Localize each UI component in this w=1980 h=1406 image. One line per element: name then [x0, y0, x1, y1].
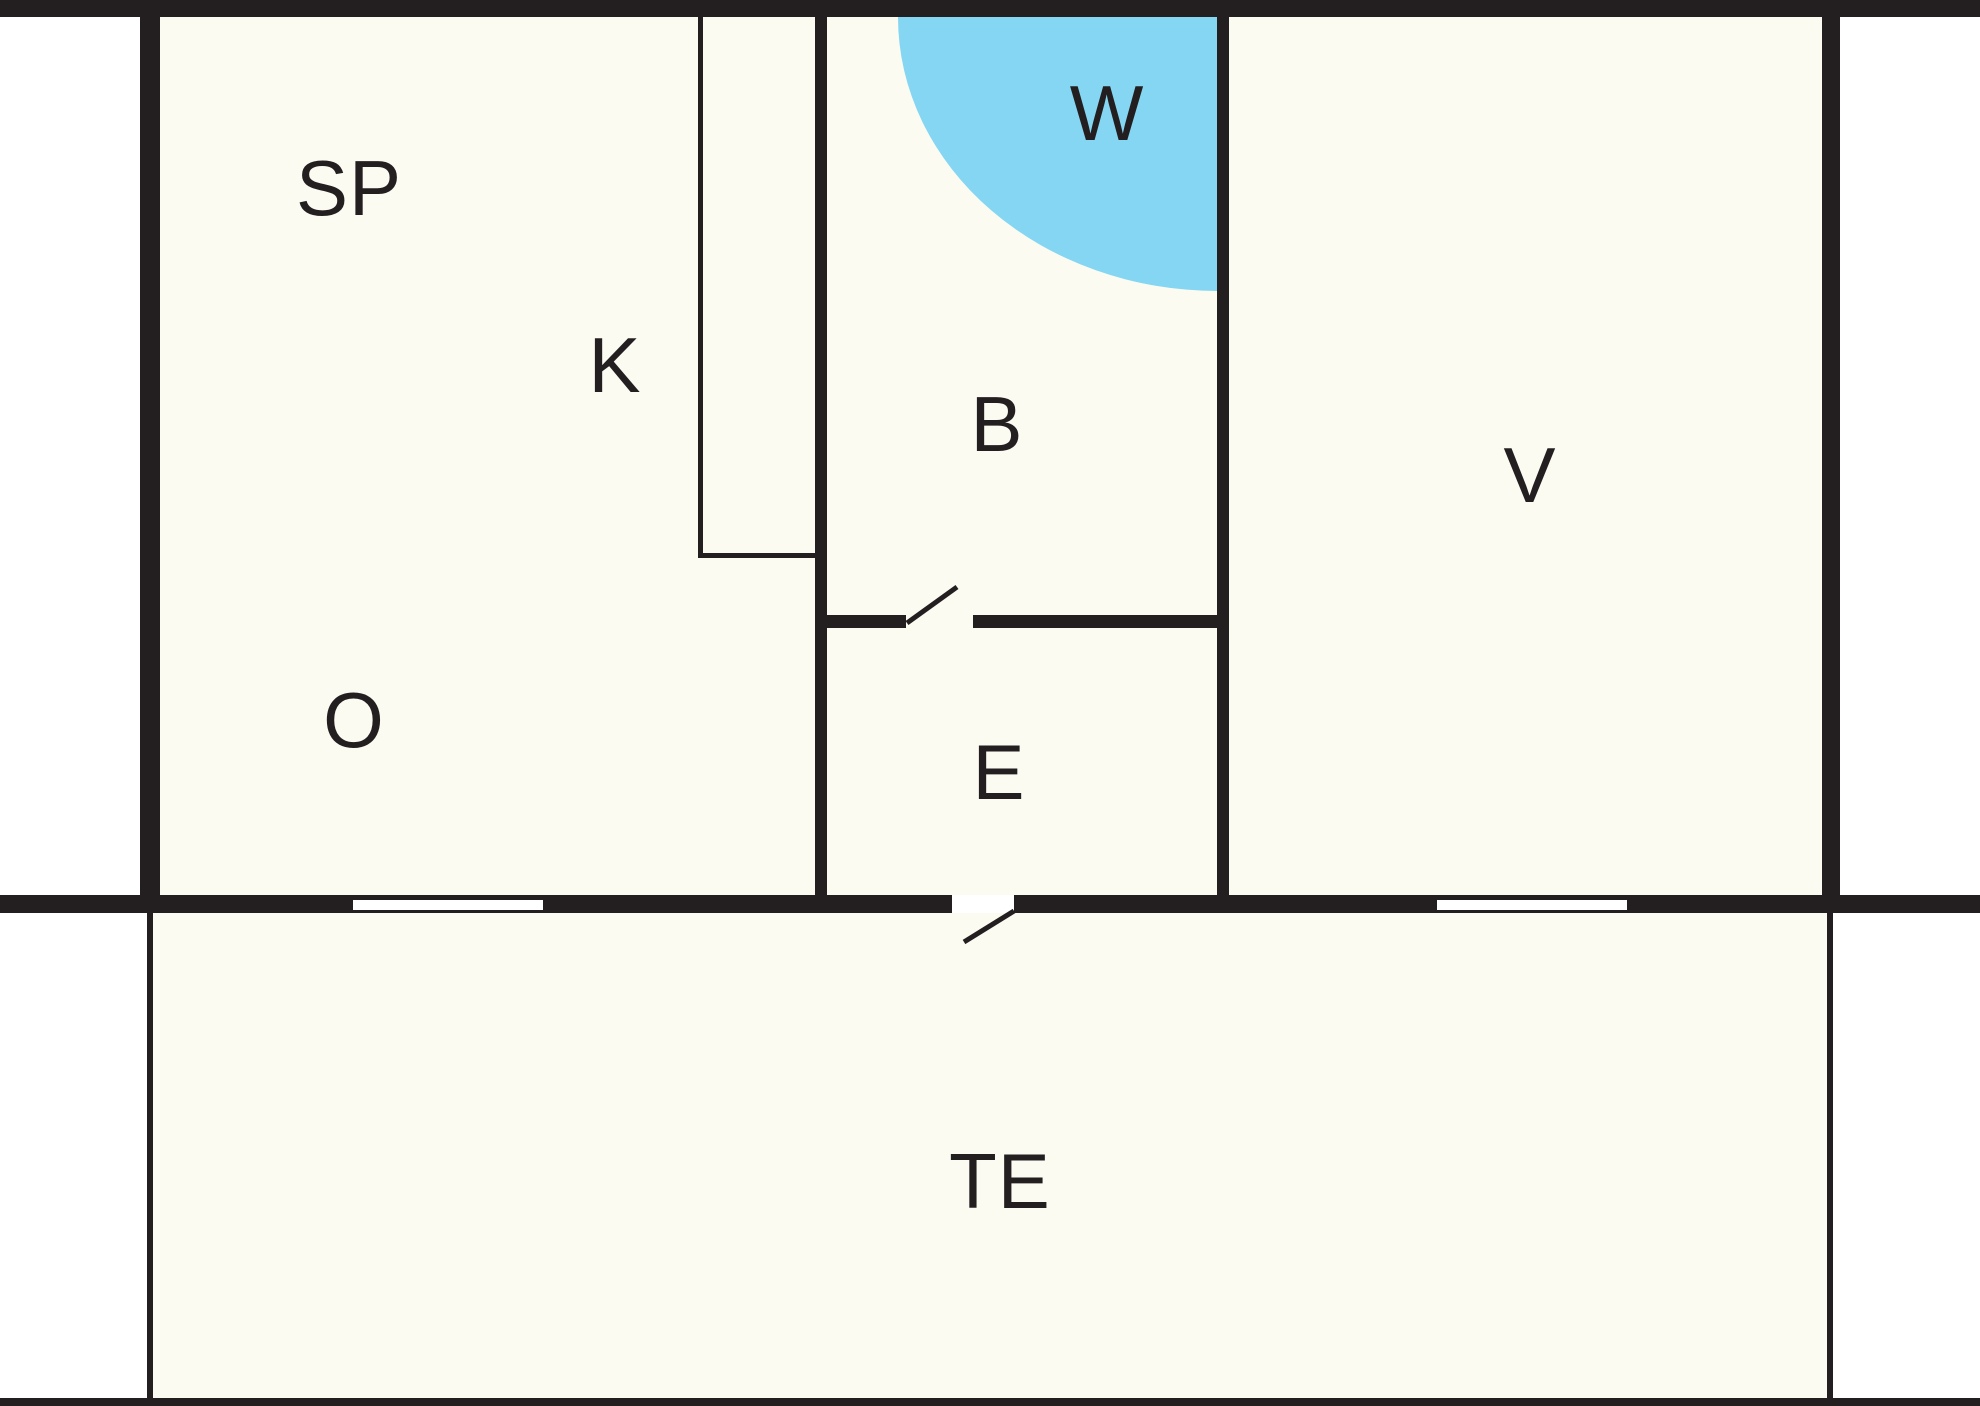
room-label-sp: SP — [296, 149, 402, 227]
room-label-te: TE — [949, 1142, 1051, 1220]
room-label-v: V — [1503, 436, 1556, 514]
room-label-e: E — [972, 733, 1025, 811]
door-leaf-entrance — [964, 911, 1014, 942]
room-label-w: W — [1070, 74, 1145, 152]
room-label-b: B — [970, 385, 1023, 463]
floor-plan: SP K W B E V O TE — [0, 0, 1980, 1406]
room-label-k: K — [588, 326, 641, 404]
room-label-o: O — [323, 681, 385, 759]
door-leaf-b-e — [907, 587, 957, 623]
